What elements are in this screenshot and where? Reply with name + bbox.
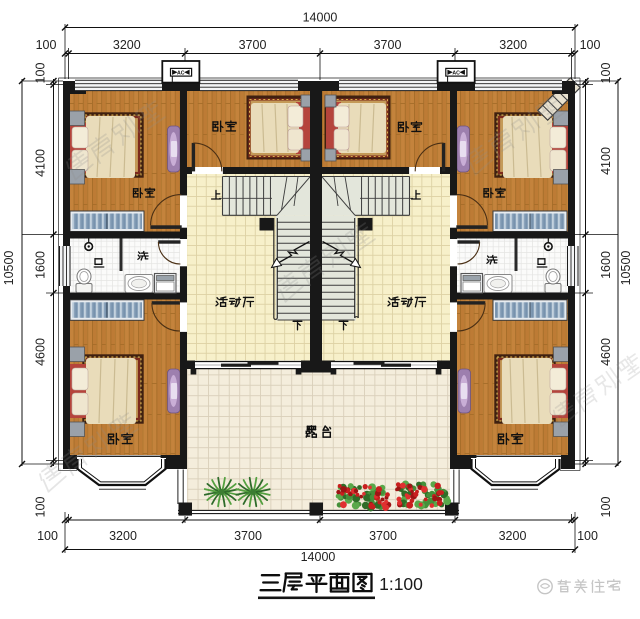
svg-text:3200: 3200 xyxy=(113,38,141,52)
svg-text:3200: 3200 xyxy=(109,529,137,543)
svg-text:3700: 3700 xyxy=(369,529,397,543)
svg-text:1600: 1600 xyxy=(34,251,48,279)
svg-text:AC: AC xyxy=(452,70,460,76)
svg-text:3200: 3200 xyxy=(499,38,527,52)
svg-text:AC: AC xyxy=(177,70,185,76)
svg-text:100: 100 xyxy=(599,63,613,84)
svg-text:4100: 4100 xyxy=(34,149,48,177)
svg-text:4600: 4600 xyxy=(599,338,613,366)
svg-text:100: 100 xyxy=(37,529,58,543)
svg-text:3700: 3700 xyxy=(374,38,402,52)
svg-text:100: 100 xyxy=(36,38,57,52)
svg-text:4100: 4100 xyxy=(599,147,613,175)
svg-text:3700: 3700 xyxy=(234,529,262,543)
svg-text:100: 100 xyxy=(34,497,48,518)
svg-text:100: 100 xyxy=(599,497,613,518)
svg-text:10500: 10500 xyxy=(2,251,16,286)
svg-text:1:100: 1:100 xyxy=(379,574,423,594)
svg-text:14000: 14000 xyxy=(303,11,338,25)
svg-text:1600: 1600 xyxy=(599,251,613,279)
svg-text:100: 100 xyxy=(577,529,598,543)
svg-text:3700: 3700 xyxy=(239,38,267,52)
svg-text:3200: 3200 xyxy=(499,529,527,543)
svg-text:100: 100 xyxy=(34,63,48,84)
svg-text:4600: 4600 xyxy=(34,338,48,366)
svg-text:14000: 14000 xyxy=(301,550,336,564)
svg-text:10500: 10500 xyxy=(619,251,633,286)
svg-text:100: 100 xyxy=(580,38,601,52)
